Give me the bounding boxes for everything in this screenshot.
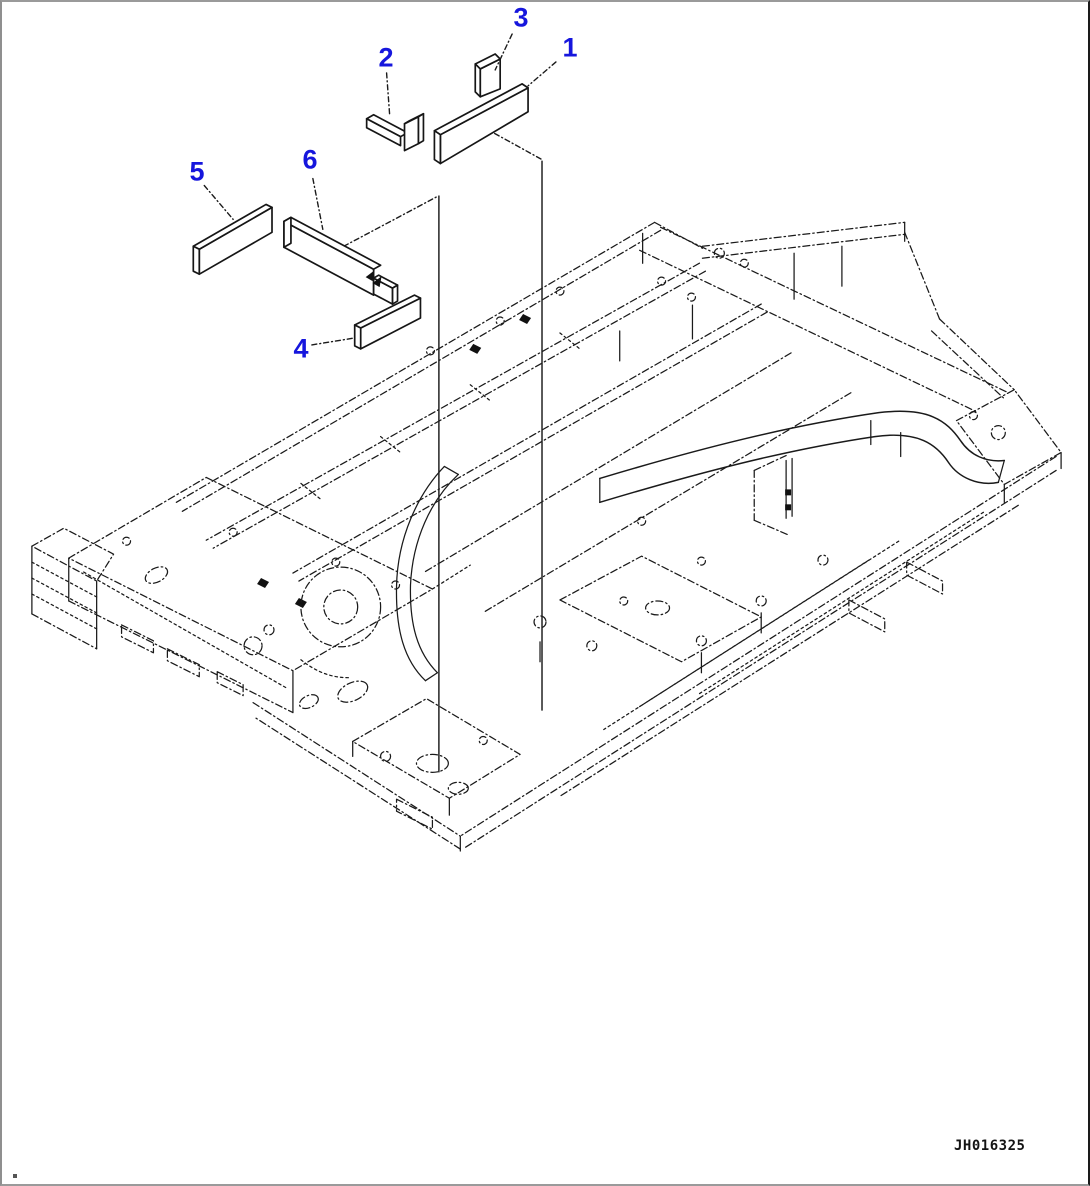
callout-1-number: 1 [562,33,577,63]
drawing-code: JH016325 [954,1138,1025,1154]
callout-5: 5 [189,159,204,186]
scan-speck [13,1174,17,1178]
callout-6: 6 [302,147,317,174]
callout-4: 4 [293,336,308,363]
machine-frame-drawing [32,222,1061,851]
machine-line-art [2,2,1088,1184]
callout-3-number: 3 [513,3,528,33]
part-5-shape [193,204,272,274]
part-2-shape [367,114,424,151]
callout-1: 1 [562,35,577,62]
callout-4-number: 4 [293,334,308,364]
part-3-shape [475,54,500,97]
callout-2: 2 [378,45,393,72]
callout-2-number: 2 [378,43,393,73]
diagram-page: 1 2 3 4 5 6 JH016325 [0,0,1090,1186]
callout-3: 3 [513,5,528,32]
callout-5-number: 5 [189,157,204,187]
reference-lines [439,161,542,773]
callout-6-number: 6 [302,145,317,175]
part-4-shape [355,295,421,349]
part-6-shape [284,217,398,304]
